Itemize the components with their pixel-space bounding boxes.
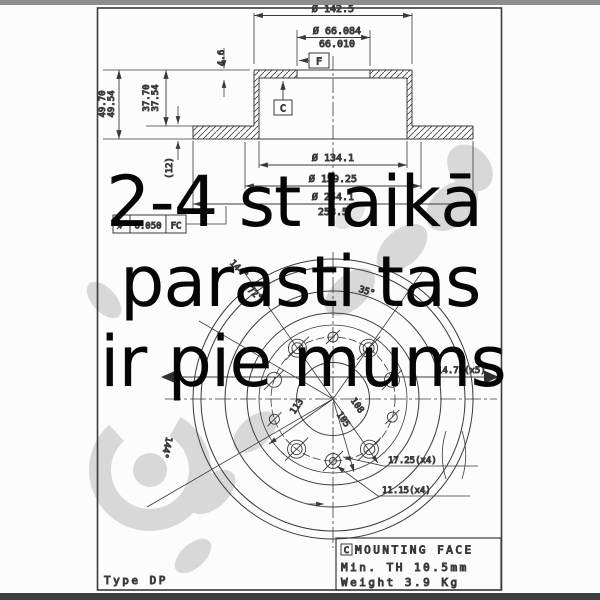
min-thickness-label: Min. TH 10.5mm bbox=[341, 561, 469, 574]
overlay-text-line-3: ir pie mums bbox=[100, 327, 506, 397]
angle-label-lower-left: 144° bbox=[159, 436, 174, 459]
type-label: Type DP bbox=[104, 574, 168, 587]
dim-pad-height: 4.6 bbox=[217, 50, 227, 66]
datum-f-label: F bbox=[316, 57, 322, 68]
title-block: C MOUNTING FACE Min. TH 10.5mm Weight 3.… bbox=[336, 538, 501, 590]
mounting-face-label: MOUNTING FACE bbox=[355, 544, 474, 557]
holes-large-label: 17.25(x4) bbox=[388, 456, 437, 466]
pcd-label-105: 105 bbox=[334, 410, 352, 429]
dim-bore-max: Ø 66.084 bbox=[313, 25, 361, 37]
dim-height-min: 49.54 bbox=[107, 90, 117, 117]
holes-small-label: 11.15(x4) bbox=[382, 486, 431, 496]
dim-bore-min: 66.010 bbox=[319, 39, 355, 50]
product-image: Ø 142.5 Ø 66.084 66.010 4.6 F C bbox=[0, 0, 600, 600]
title-datum-ref: C bbox=[344, 546, 349, 556]
datum-c-label: C bbox=[280, 104, 286, 115]
image-bottom-border bbox=[0, 593, 600, 600]
image-top-border bbox=[0, 0, 600, 5]
overlay-text-line-2: parasti tas bbox=[120, 247, 480, 317]
overlay-text-line-1: 2-4 st laikā bbox=[106, 167, 482, 237]
dim-hat-height-min: 37.54 bbox=[151, 84, 161, 111]
weight-label: Weight 3.9 Kg bbox=[341, 576, 460, 589]
